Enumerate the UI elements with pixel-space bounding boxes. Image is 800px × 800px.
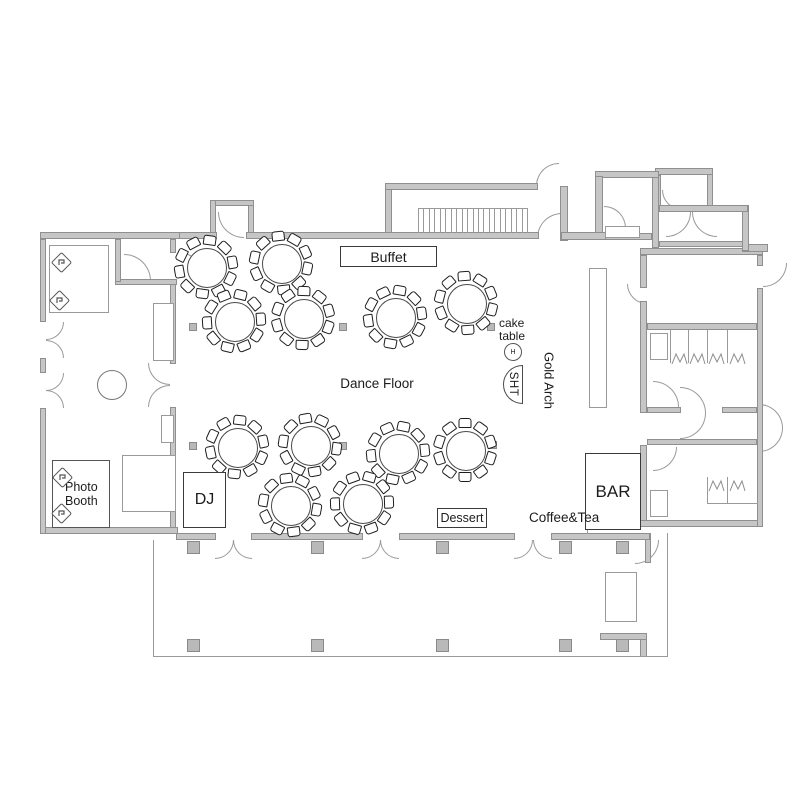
wall [40, 408, 46, 534]
chair [301, 261, 313, 276]
cake-stand[interactable]: H [504, 343, 522, 361]
wall [561, 232, 606, 240]
door-arc [680, 387, 706, 413]
door-arc [653, 447, 677, 471]
stair-tread [445, 208, 446, 233]
door-arc [148, 363, 170, 385]
stair-tread [522, 208, 523, 233]
column [189, 442, 197, 450]
toilet-icon [671, 352, 688, 365]
dj-booth[interactable]: DJ [183, 472, 226, 528]
door-arc [124, 254, 151, 281]
fixture [605, 226, 640, 238]
chair [457, 271, 471, 282]
wall [640, 445, 647, 527]
chair [227, 255, 239, 270]
wall [115, 279, 177, 285]
thin-line [153, 540, 154, 657]
deck-column [559, 639, 572, 652]
chair [434, 305, 448, 321]
chair [257, 493, 269, 508]
floor-plan-canvas: Buffet DJ BAR Dessert Photo Booth Dance … [0, 0, 800, 800]
door-arc [46, 373, 64, 391]
sht-label: SHT [505, 368, 519, 400]
wall [595, 176, 603, 240]
staircase [122, 455, 176, 512]
wall [600, 633, 647, 640]
chair [322, 303, 335, 318]
wall [595, 171, 659, 178]
chair [233, 414, 247, 425]
thin-line [727, 330, 728, 363]
wall [40, 239, 46, 322]
door-arc [666, 212, 691, 237]
chair [298, 412, 313, 424]
chair [277, 434, 289, 448]
table-top [215, 302, 255, 342]
door-arc [514, 540, 533, 559]
chair [461, 324, 475, 335]
stair-tread [527, 208, 528, 233]
deck-column [616, 541, 629, 554]
stair-tread [489, 208, 490, 233]
cake-table-label: cake table [499, 317, 539, 343]
table-top [218, 428, 258, 468]
fixture [650, 490, 668, 517]
gold-arch-label: Gold Arch [542, 341, 557, 421]
thin-line [727, 477, 728, 504]
wall [655, 168, 713, 175]
table-top [187, 248, 227, 288]
chair [433, 434, 447, 449]
chair [330, 497, 340, 510]
chair [362, 314, 374, 328]
wall [659, 205, 748, 212]
door-arc [380, 540, 399, 559]
chair [384, 495, 394, 508]
wall [251, 533, 363, 540]
door-arc [692, 212, 717, 237]
bar-label: BAR [596, 482, 631, 502]
table-top [447, 284, 487, 324]
column [189, 323, 197, 331]
door-arc [218, 212, 244, 238]
stair-tread [505, 208, 506, 233]
wall [170, 239, 176, 253]
buffet-table[interactable]: Buffet [340, 246, 437, 267]
chair [279, 472, 293, 484]
door-arc [215, 540, 234, 559]
coffee-tea-label: Coffee&Tea [529, 510, 599, 525]
wall [210, 200, 216, 234]
thin-line [670, 330, 671, 363]
chair [365, 449, 376, 463]
chair [249, 266, 263, 282]
wall [647, 439, 757, 445]
chair [173, 264, 185, 279]
wall [722, 407, 757, 413]
stair-tread [478, 208, 479, 233]
door-arc [233, 540, 252, 559]
fixture [589, 268, 607, 408]
chair [392, 284, 407, 296]
wall [210, 200, 254, 206]
chair [202, 316, 213, 330]
stair-tread [473, 208, 474, 233]
wall [385, 187, 392, 236]
fixture [650, 333, 668, 360]
wall [399, 533, 515, 540]
chair [419, 443, 430, 457]
door-arc [763, 263, 787, 287]
chair [331, 442, 343, 456]
table-top [291, 426, 331, 466]
deck-column [436, 639, 449, 652]
table-top [379, 434, 419, 474]
toilet-icon [708, 352, 725, 365]
wall [40, 232, 180, 239]
stair-tread [423, 208, 424, 233]
wall [551, 533, 650, 540]
door-arc [533, 540, 552, 559]
wall [640, 301, 647, 413]
deck-column [187, 639, 200, 652]
door-arc [46, 322, 64, 340]
stairs-edge [418, 208, 527, 209]
chair [396, 420, 411, 432]
cake-stand-monogram: H [510, 349, 515, 356]
chair [203, 234, 217, 246]
chair [195, 288, 209, 300]
wall [40, 527, 178, 534]
table-top [446, 431, 486, 471]
deck-column [311, 639, 324, 652]
chair [459, 472, 472, 482]
stair-tread [516, 208, 517, 233]
chair [362, 470, 377, 483]
chair [379, 421, 395, 435]
door-arc [537, 213, 562, 238]
chair [345, 471, 361, 485]
toilet-icon [729, 352, 746, 365]
chair [233, 288, 248, 301]
table-top [271, 486, 311, 526]
chair [311, 502, 323, 517]
chair [433, 289, 446, 304]
chair [271, 230, 285, 241]
door-arc [536, 163, 559, 186]
door-arc [148, 385, 170, 407]
stair-tread [440, 208, 441, 233]
table-top [284, 299, 324, 339]
toilet-icon [689, 352, 706, 365]
thin-line [707, 477, 708, 504]
fixture [153, 303, 174, 361]
toilet-icon [729, 479, 746, 492]
door-arc [46, 390, 64, 408]
thin-line [667, 533, 668, 657]
chair [383, 338, 398, 350]
chair [416, 306, 428, 320]
stair-tread [451, 208, 452, 233]
deck-column [616, 639, 629, 652]
buffet-label: Buffet [370, 249, 406, 265]
door-arc [604, 206, 626, 228]
stair-tread [500, 208, 501, 233]
chair [227, 468, 241, 479]
stair-tread [429, 208, 430, 233]
chair [459, 418, 472, 428]
deck-column [436, 541, 449, 554]
chair [270, 318, 283, 333]
chair [257, 434, 269, 449]
wall [659, 241, 749, 247]
thin-line [707, 503, 758, 504]
chair [297, 286, 310, 296]
wall [176, 533, 216, 540]
door-arc [362, 540, 381, 559]
deck-column [559, 541, 572, 554]
table-top [343, 484, 383, 524]
thin-line [153, 656, 668, 657]
stair-tread [511, 208, 512, 233]
fixture [605, 572, 637, 622]
thin-line [707, 330, 708, 363]
wall [647, 323, 757, 330]
dessert-label: Dessert [440, 511, 483, 525]
door-arc [46, 340, 64, 358]
chair [205, 428, 219, 444]
chair [287, 526, 301, 538]
wall [640, 255, 647, 288]
thin-line [688, 330, 689, 363]
wall [647, 407, 681, 413]
photo-booth-label: Photo Booth [65, 480, 109, 508]
wall [652, 171, 659, 248]
table-top [262, 244, 302, 284]
chair [486, 302, 499, 317]
chair [433, 451, 447, 466]
toilet-icon [708, 479, 725, 492]
chair [248, 250, 260, 265]
stair-tread [462, 208, 463, 233]
wall [115, 239, 121, 282]
chair [271, 301, 285, 317]
chair [220, 341, 235, 354]
door-arc [680, 413, 706, 439]
door-arc [653, 381, 679, 407]
stair-tread [483, 208, 484, 233]
chair [484, 451, 498, 466]
chair [295, 340, 308, 350]
stair-tread [456, 208, 457, 233]
wall [385, 183, 538, 190]
wall [757, 288, 763, 527]
lobby-round-table[interactable] [97, 370, 127, 400]
dessert-table[interactable]: Dessert [437, 508, 487, 528]
chair [255, 312, 266, 326]
wall [40, 358, 46, 373]
column [339, 323, 347, 331]
chair [204, 445, 216, 460]
deck-column [187, 541, 200, 554]
wall [640, 520, 763, 527]
stair-tread [467, 208, 468, 233]
stair-tread [418, 208, 419, 233]
stair-tread [434, 208, 435, 233]
chair [307, 466, 322, 478]
dance-floor-label: Dance Floor [327, 376, 427, 391]
fixture [161, 415, 174, 443]
dj-label: DJ [195, 491, 215, 509]
table-top [376, 298, 416, 338]
wall [757, 255, 763, 266]
stair-tread [494, 208, 495, 233]
deck-column [311, 541, 324, 554]
chair [375, 285, 391, 300]
